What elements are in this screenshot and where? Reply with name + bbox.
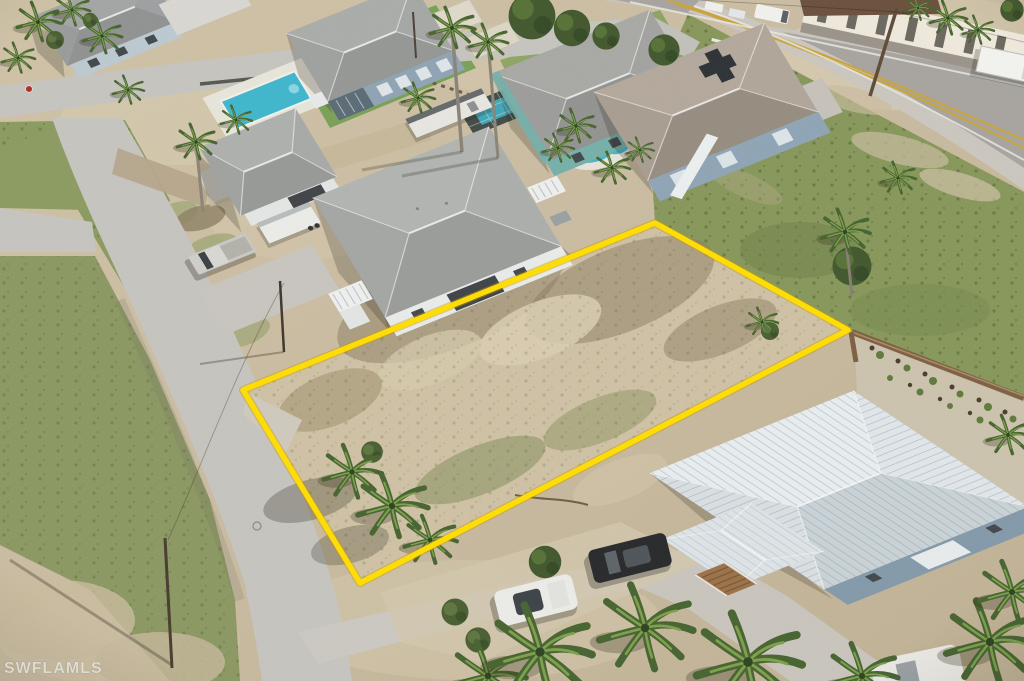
- mls-watermark: SWFLAMLS: [4, 660, 103, 677]
- vignette: [0, 0, 1024, 681]
- aerial-photo: SWFLAMLS: [0, 0, 1024, 681]
- aerial-photo-listing: SWFLAMLS: [0, 0, 1024, 681]
